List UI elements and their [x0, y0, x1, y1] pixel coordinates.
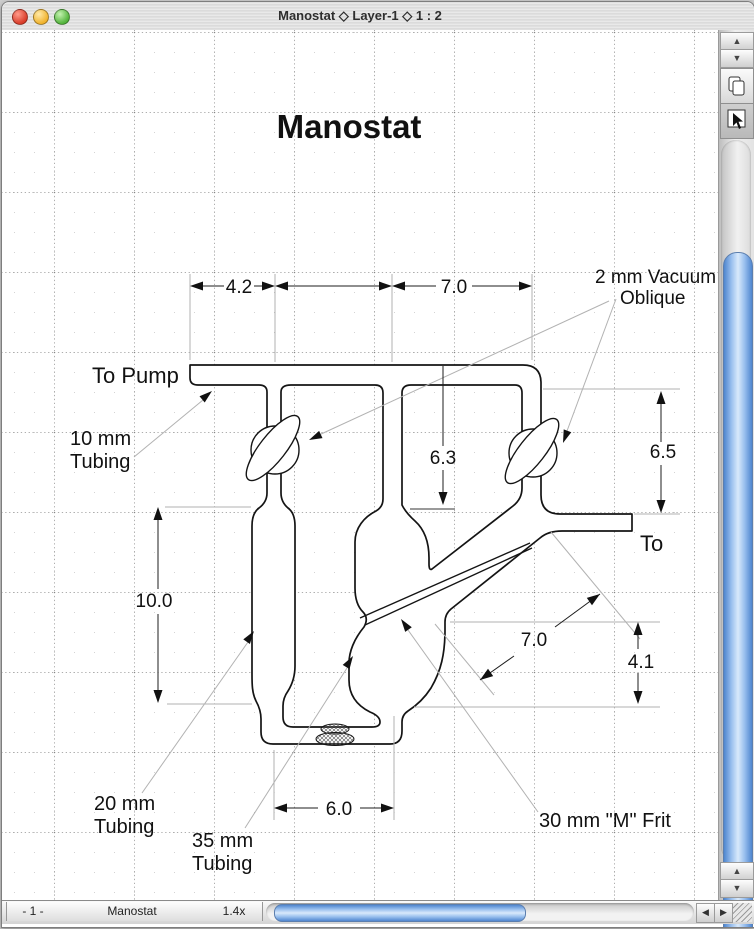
- drawing-title: Manostat: [277, 108, 422, 145]
- horizontal-scroll-track[interactable]: [266, 903, 694, 921]
- dim-6-5: 6.5: [650, 442, 676, 463]
- sheet-tab[interactable]: Manostat: [58, 902, 207, 921]
- zoom-level[interactable]: 1.4x: [206, 902, 263, 921]
- dim-4-1: 4.1: [628, 652, 654, 673]
- label-20mm-line2: Tubing: [94, 816, 154, 838]
- app-window: Manostat ◇ Layer-1 ◇ 1 : 2: [1, 1, 754, 928]
- vertical-scroll-thumb[interactable]: [723, 252, 753, 928]
- scroll-down-small-icon[interactable]: ▼: [720, 49, 754, 68]
- vertical-scrollbar[interactable]: ▲ ▼ ▲ ▼: [718, 30, 754, 900]
- scroll-right-icon[interactable]: ▶: [714, 903, 733, 923]
- resize-grip[interactable]: [733, 903, 752, 922]
- frit: [316, 724, 354, 746]
- scroll-down-icon[interactable]: ▼: [720, 879, 754, 898]
- label-frit: 30 mm "M" Frit: [539, 810, 671, 832]
- window-title: Manostat ◇ Layer-1 ◇ 1 : 2: [2, 2, 718, 30]
- label-to: To: [640, 531, 663, 556]
- label-20mm-line1: 20 mm: [94, 793, 155, 815]
- label-to-pump: To Pump: [92, 363, 179, 388]
- label-10mm-line1: 10 mm: [70, 428, 131, 450]
- dim-7-0-diagonal: 7.0: [521, 630, 547, 651]
- title-bar[interactable]: Manostat ◇ Layer-1 ◇ 1 : 2: [2, 2, 754, 31]
- label-35mm-line1: 35 mm: [192, 830, 253, 852]
- status-bar: - 1 - Manostat 1.4x ◀ ▶: [2, 900, 754, 924]
- dim-4-2: 4.2: [226, 277, 252, 298]
- scroll-left-icon[interactable]: ◀: [696, 903, 715, 923]
- horizontal-scroll-thumb[interactable]: [274, 904, 526, 922]
- pointer-tool-icon[interactable]: [720, 103, 754, 139]
- label-10mm-line2: Tubing: [70, 451, 130, 473]
- label-oblique-line1: 2 mm Vacuum: [595, 267, 716, 288]
- dim-6-0: 6.0: [326, 799, 352, 820]
- dim-7-0-top: 7.0: [441, 277, 467, 298]
- label-oblique-line2: Oblique: [620, 288, 686, 309]
- page-indicator[interactable]: - 1 -: [6, 902, 60, 921]
- vertical-scroll-track[interactable]: [721, 140, 751, 862]
- label-35mm-line2: Tubing: [192, 853, 252, 875]
- dim-6-3: 6.3: [430, 448, 456, 469]
- drawing-canvas[interactable]: Manostat To Pump To 10 mm Tubing 20 mm T…: [2, 30, 718, 900]
- dim-10-0: 10.0: [136, 591, 173, 612]
- pages-icon[interactable]: [720, 68, 754, 104]
